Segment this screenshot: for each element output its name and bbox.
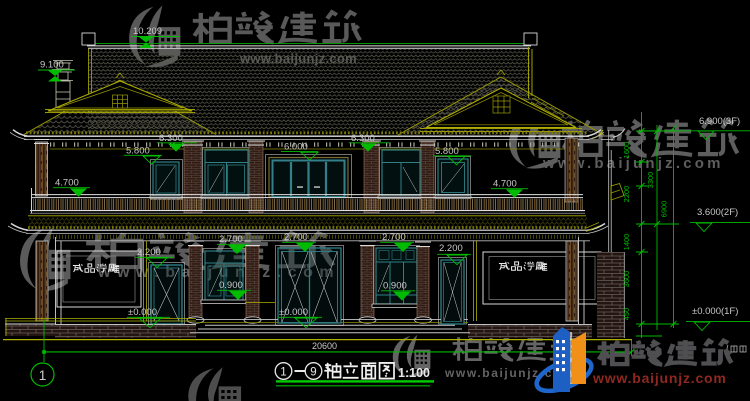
svg-text:1600: 1600 xyxy=(622,142,631,159)
svg-text:0.900: 0.900 xyxy=(219,280,243,291)
svg-text:2.700: 2.700 xyxy=(382,232,406,243)
svg-text:10.209: 10.209 xyxy=(133,26,162,37)
svg-text:www.baijunjz.com: www.baijunjz.com xyxy=(592,370,727,386)
svg-text:2.200: 2.200 xyxy=(439,243,463,254)
svg-text:450: 450 xyxy=(622,308,631,321)
svg-text:3600: 3600 xyxy=(622,271,631,288)
svg-text:4.700: 4.700 xyxy=(493,179,517,190)
svg-text:1: 1 xyxy=(39,367,47,383)
svg-text:9: 9 xyxy=(310,367,316,379)
svg-text:2.700: 2.700 xyxy=(219,234,243,245)
svg-text:2.200: 2.200 xyxy=(137,247,161,258)
svg-text:3.600(2F): 3.600(2F) xyxy=(697,207,738,218)
svg-text:±0.000: ±0.000 xyxy=(128,307,157,318)
svg-text:0.900: 0.900 xyxy=(383,281,407,292)
svg-text:2200: 2200 xyxy=(622,186,631,203)
svg-text:9.100: 9.100 xyxy=(40,60,64,71)
svg-text:6900: 6900 xyxy=(660,201,669,218)
svg-text:±0.000(1F): ±0.000(1F) xyxy=(692,306,738,317)
svg-text:6.000: 6.000 xyxy=(284,142,308,153)
svg-text:1:100: 1:100 xyxy=(398,366,430,380)
svg-text:6.900(3F): 6.900(3F) xyxy=(699,116,740,127)
svg-text:2.700: 2.700 xyxy=(284,232,308,243)
svg-text:1: 1 xyxy=(280,367,286,379)
svg-text:1400: 1400 xyxy=(622,234,631,251)
svg-text:3300: 3300 xyxy=(646,172,655,189)
svg-text:4.700: 4.700 xyxy=(55,178,79,189)
svg-text:20600: 20600 xyxy=(312,341,337,351)
svg-text:±0.000: ±0.000 xyxy=(279,307,308,318)
